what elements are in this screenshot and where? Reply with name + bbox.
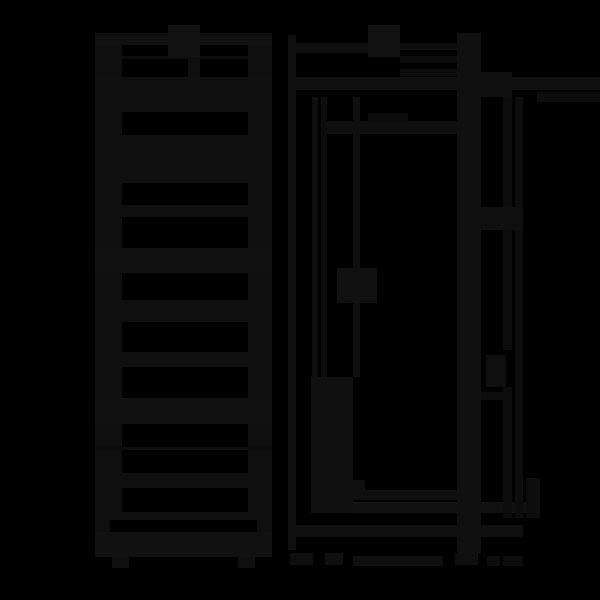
side-top-long-line [288,77,600,90]
front-foot-right [238,557,255,568]
front-slat-5 [95,398,272,424]
front-foot-left [112,557,129,568]
side-back-band [457,33,481,553]
front-slat-1 [95,205,272,217]
side-foot-bar [353,556,443,566]
side-door-line-1 [312,97,318,377]
dim-arrow-blob [486,355,506,387]
front-bottom-stub-right [257,520,272,532]
technical-drawing-canvas [0,0,600,600]
front-hairline [95,447,272,450]
front-label-block [168,25,200,57]
dim-crossbar [481,207,523,230]
side-label-block [368,25,400,57]
side-left-edge-line [288,35,296,550]
side-shelf-line [321,121,478,134]
dim-bar [481,392,505,400]
dim-line-b [515,97,523,518]
front-base [95,532,272,557]
side-door-bottom-panel [311,377,353,513]
side-foot-5 [503,556,523,566]
front-slat-6 [95,473,272,488]
side-bottom-line-1 [353,490,458,500]
side-foot-4 [487,556,500,566]
dim-top-connector [481,72,512,97]
side-foot-1 [290,553,313,565]
side-bottom-step [353,480,365,490]
front-slab [95,135,272,183]
front-label-stub [188,57,200,77]
dim-line-c [526,478,540,518]
side-label-stub [368,113,408,121]
side-door-line-2 [321,97,327,377]
dim-line-a-lower [503,387,512,518]
front-slat-4 [95,352,272,367]
front-slat-3 [95,300,272,322]
front-bottom-bar [95,512,272,520]
side-foot-2 [325,553,343,565]
front-slat-2 [95,248,272,273]
front-bottom-stub-left [95,520,110,532]
front-top-bar-2 [95,77,272,112]
side-bottom-line-3 [295,525,523,537]
side-foot-3 [455,553,478,565]
side-inner-line [353,97,360,377]
side-door-handle [337,268,377,303]
side-top-right-line [537,92,600,102]
